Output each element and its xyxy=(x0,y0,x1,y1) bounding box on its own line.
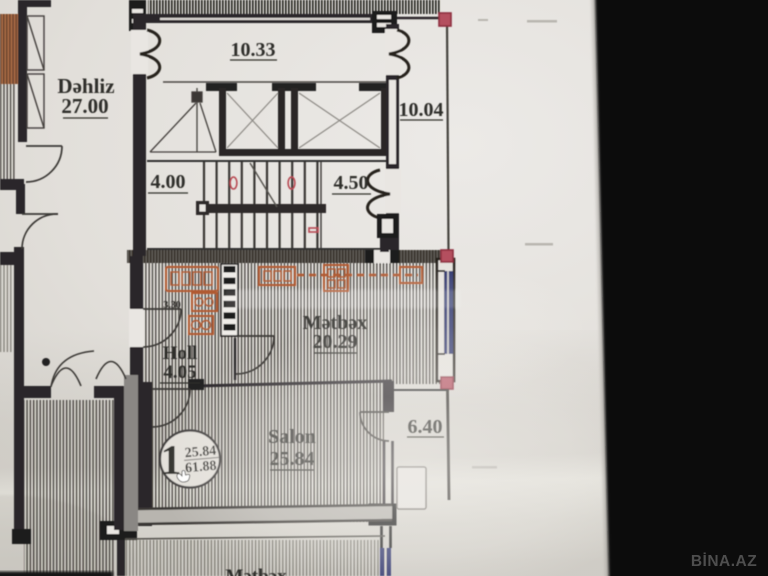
svg-text:4.00: 4.00 xyxy=(151,171,186,193)
svg-text:BİNA.AZ: BİNA.AZ xyxy=(691,553,757,570)
svg-text:4.50: 4.50 xyxy=(334,172,369,194)
svg-text:3.30: 3.30 xyxy=(163,300,181,311)
svg-text:Holl: Holl xyxy=(163,343,198,364)
svg-text:10.04: 10.04 xyxy=(399,99,444,121)
svg-text:4.05: 4.05 xyxy=(163,362,196,383)
svg-text:10.33: 10.33 xyxy=(231,39,276,61)
svg-text:27.00: 27.00 xyxy=(61,94,108,118)
